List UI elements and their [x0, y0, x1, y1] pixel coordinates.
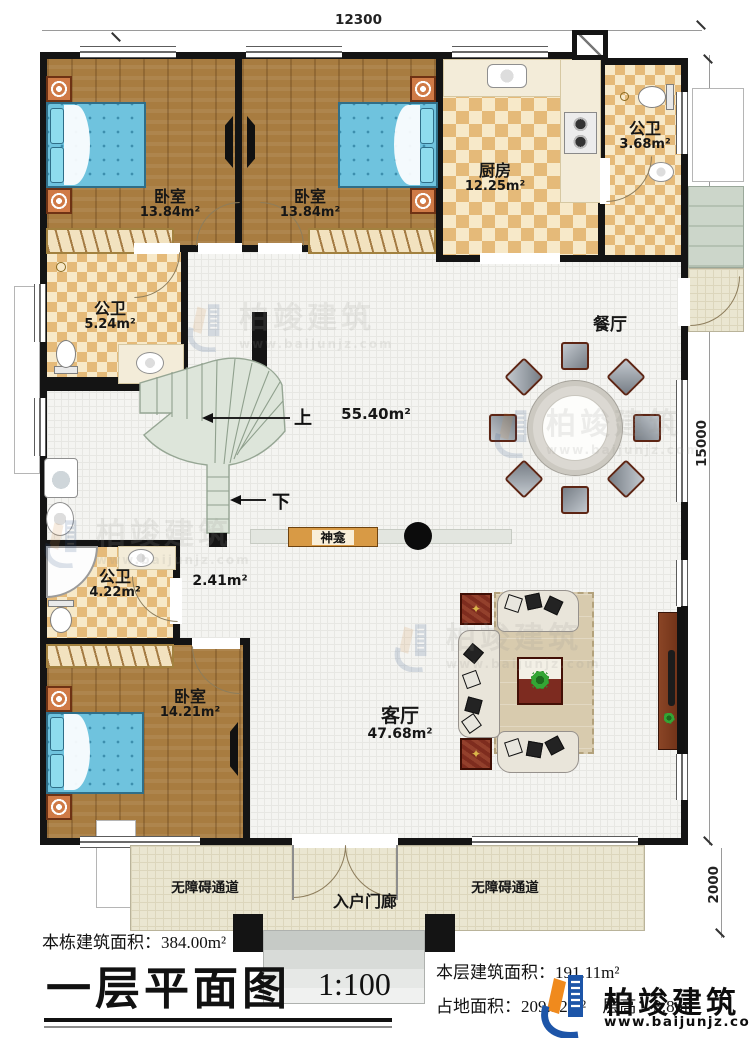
toilet: [56, 340, 76, 368]
company-logo-url: www.baijunjz.com: [604, 1014, 750, 1030]
room-area: 13.84m²: [110, 206, 230, 221]
building-total-area: 本栋建筑面积：384.00m²: [42, 928, 226, 953]
wardrobe: [46, 644, 174, 668]
porch-label: 入户门廊: [300, 893, 430, 911]
kitchen-label: 厨房 12.25m²: [435, 162, 555, 194]
staircase: [125, 355, 295, 550]
dining-chair: [489, 414, 517, 442]
stair-up-arrow-line: [212, 417, 290, 419]
door-opening: [480, 253, 560, 264]
plant: [530, 670, 550, 690]
ramp-right-label: 无障碍通道: [440, 878, 570, 896]
room-name: 客厅: [360, 706, 440, 727]
room-name: 公卫: [600, 120, 690, 138]
window: [676, 380, 688, 502]
stair-up-label: 上: [294, 404, 312, 430]
nightstand: [46, 794, 72, 820]
living-label: 客厅 47.68m²: [360, 706, 440, 743]
shrine-label: 神龛: [312, 530, 353, 545]
dimension-right-label: 15000: [694, 420, 710, 467]
pillow: [50, 754, 64, 788]
room-area: 14.21m²: [130, 706, 250, 721]
pillow: [420, 147, 434, 183]
toilet: [50, 607, 72, 633]
bath-ml-label: 公卫 5.24m²: [55, 300, 165, 332]
pillow: [420, 108, 434, 144]
sofa-pillow: [526, 741, 543, 758]
ramp-right-text: 无障碍通道: [471, 880, 539, 896]
dining-chair: [633, 414, 661, 442]
nightstand: [410, 76, 436, 102]
pillow: [50, 717, 64, 751]
shower-fixture: [56, 262, 66, 272]
dimension-top-label: 12300: [335, 12, 382, 28]
bathroom-sink: [648, 162, 674, 182]
bed-sheet: [394, 105, 420, 185]
room-name: 卧室: [250, 188, 370, 206]
room-area: 12.25m²: [435, 180, 555, 195]
room-name: 卧室: [110, 188, 230, 206]
washing-machine: [44, 458, 78, 498]
dining-chair: [561, 486, 589, 514]
room-name: 公卫: [55, 300, 165, 318]
dimension-tick: [696, 20, 706, 30]
wardrobe: [308, 228, 436, 254]
bedroom-b-label: 卧室 14.21m²: [130, 688, 250, 720]
room-area: 2.41m²: [185, 574, 255, 590]
dining-label: 餐厅: [575, 316, 645, 335]
stove: [564, 112, 597, 154]
corridor-area-label: 2.41m²: [185, 574, 255, 590]
tv-screen: [668, 650, 675, 706]
shrine: 神龛: [288, 527, 378, 547]
plan-title: 一层平面图: [46, 952, 291, 1017]
bedroom-tm-label: 卧室 13.84m²: [250, 188, 370, 220]
dimension-porch-label: 2000: [706, 866, 722, 904]
ramp-left-label: 无障碍通道: [140, 878, 270, 896]
room-area: 55.40m²: [336, 406, 416, 423]
bathroom-sink: [128, 549, 154, 567]
window: [452, 46, 548, 58]
company-logo-icon: [538, 972, 598, 1038]
end-table: ✦: [460, 738, 492, 770]
dining-chair: [561, 342, 589, 370]
porch-text: 入户门廊: [333, 892, 397, 911]
porch-pier: [425, 914, 455, 952]
room-name: 厨房: [435, 162, 555, 180]
ramp-left-text: 无障碍通道: [171, 880, 239, 896]
door-leaf: [292, 845, 294, 900]
stair-up-arrowhead: [202, 413, 213, 423]
stair-down-arrowhead: [230, 495, 241, 505]
bay-outline: [692, 88, 744, 182]
nightstand: [46, 686, 72, 712]
tv-panel: [677, 607, 685, 755]
exterior-steps: [688, 186, 744, 268]
nightstand: [46, 76, 72, 102]
stair-down-label: 下: [272, 488, 290, 514]
window: [34, 398, 46, 456]
room-area: 5.24m²: [55, 318, 165, 333]
floor-plan-page: 12300 15000 2000: [0, 0, 750, 1043]
door-opening: [678, 278, 690, 326]
window: [676, 754, 688, 800]
stair-down-arrow-line: [240, 499, 266, 501]
dimension-tick: [703, 836, 713, 846]
sofa-pillow: [525, 593, 543, 611]
room-name: 餐厅: [575, 316, 645, 335]
structural-column: [404, 522, 432, 550]
building-total-value: 384.00m²: [161, 933, 226, 952]
dining-table-top: [542, 395, 608, 461]
bedroom-tl-label: 卧室 13.84m²: [110, 188, 230, 220]
toilet-tank: [666, 84, 674, 110]
pillow: [50, 147, 64, 183]
window: [676, 560, 688, 606]
pedestal-sink: [46, 502, 74, 536]
shower-fixture: [620, 92, 629, 101]
plant: [663, 712, 675, 724]
room-area: 4.22m²: [60, 586, 170, 601]
title-underline-thin: [44, 1026, 392, 1028]
flue-box: [572, 30, 608, 60]
hall-area-label: 55.40m²: [336, 406, 416, 423]
window: [34, 284, 46, 342]
toilet: [638, 86, 666, 108]
pillow: [50, 108, 64, 144]
nightstand: [46, 188, 72, 214]
dimension-tick: [715, 928, 725, 938]
nightstand: [410, 188, 436, 214]
room-name: 卧室: [130, 688, 250, 706]
bath-bl-label: 公卫 4.22m²: [60, 568, 170, 600]
porch-pier: [233, 914, 263, 952]
window: [246, 46, 342, 58]
room-area: 13.84m²: [250, 206, 370, 221]
room-name: 公卫: [60, 568, 170, 586]
title-underline-thick: [44, 1018, 392, 1022]
plan-scale: 1:100: [318, 966, 391, 1003]
bath-tr-label: 公卫 3.68m²: [600, 120, 690, 152]
room-area: 47.68m²: [360, 727, 440, 743]
end-table: ✦: [460, 593, 492, 625]
toilet-tank: [48, 600, 74, 607]
dimension-tick: [111, 32, 121, 42]
building-total-label: 本栋建筑面积：: [42, 933, 161, 952]
dimension-tick: [703, 54, 713, 64]
room-area: 3.68m²: [600, 138, 690, 153]
kitchen-sink: [487, 64, 527, 88]
land-area-label: 占地面积：: [436, 997, 521, 1016]
window: [80, 46, 176, 58]
